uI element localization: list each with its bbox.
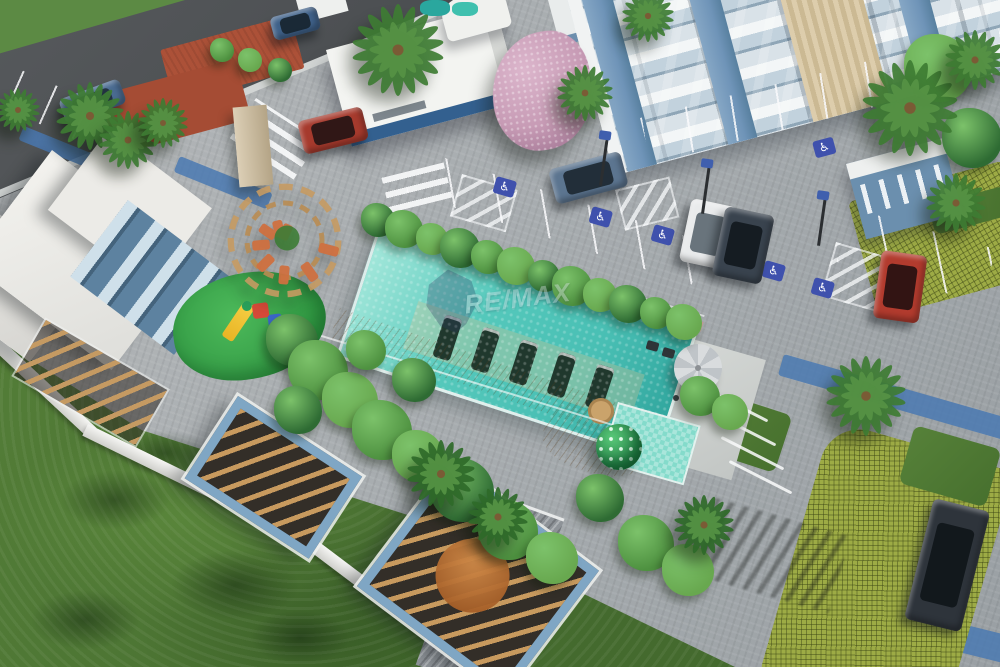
palm-tree-icon bbox=[622, 0, 674, 42]
shrub bbox=[712, 394, 748, 430]
parking-sign bbox=[701, 158, 714, 169]
teal-play-structure bbox=[452, 2, 478, 16]
car-glass bbox=[563, 161, 615, 196]
tree-shadow bbox=[250, 610, 350, 665]
car-red-east bbox=[873, 250, 928, 324]
shrub bbox=[210, 38, 234, 62]
entrance-gate-pillar bbox=[233, 105, 274, 188]
car-glass bbox=[278, 12, 312, 35]
shrub bbox=[274, 386, 322, 434]
shrub bbox=[392, 358, 436, 402]
shrub bbox=[576, 474, 624, 522]
watermark-text: RE/MAX bbox=[463, 277, 573, 321]
car-glass bbox=[310, 115, 356, 146]
palm-tree-icon bbox=[674, 495, 734, 555]
aerial-condo-render: RE/MAX ♿♿♿♿♿♿ bbox=[0, 0, 1000, 667]
polka-dot-sphere bbox=[596, 424, 642, 470]
tree-shadow bbox=[30, 590, 140, 650]
car-glass bbox=[882, 263, 917, 310]
palm-tree-icon bbox=[138, 98, 188, 148]
car-glass bbox=[723, 220, 764, 270]
palm-tree-icon bbox=[407, 440, 475, 508]
shrub bbox=[346, 330, 386, 370]
shrub bbox=[268, 58, 292, 82]
spiral-wood-structure bbox=[222, 178, 347, 303]
palm-tree-icon bbox=[862, 60, 958, 156]
parking-sign bbox=[817, 190, 830, 201]
palm-tree-icon bbox=[468, 487, 528, 547]
palm-tree-icon bbox=[557, 65, 613, 121]
shrub bbox=[526, 532, 578, 584]
palm-tree-icon bbox=[352, 4, 444, 96]
shrub bbox=[238, 48, 262, 72]
palm-tree-icon bbox=[926, 173, 986, 233]
parking-sign bbox=[599, 130, 612, 141]
palm-tree-icon bbox=[945, 30, 1000, 90]
shrub bbox=[666, 304, 702, 340]
tree-shadow bbox=[60, 470, 170, 530]
car-glass bbox=[920, 522, 975, 608]
palm-tree-icon bbox=[0, 88, 40, 132]
palm-tree-icon bbox=[826, 356, 906, 436]
